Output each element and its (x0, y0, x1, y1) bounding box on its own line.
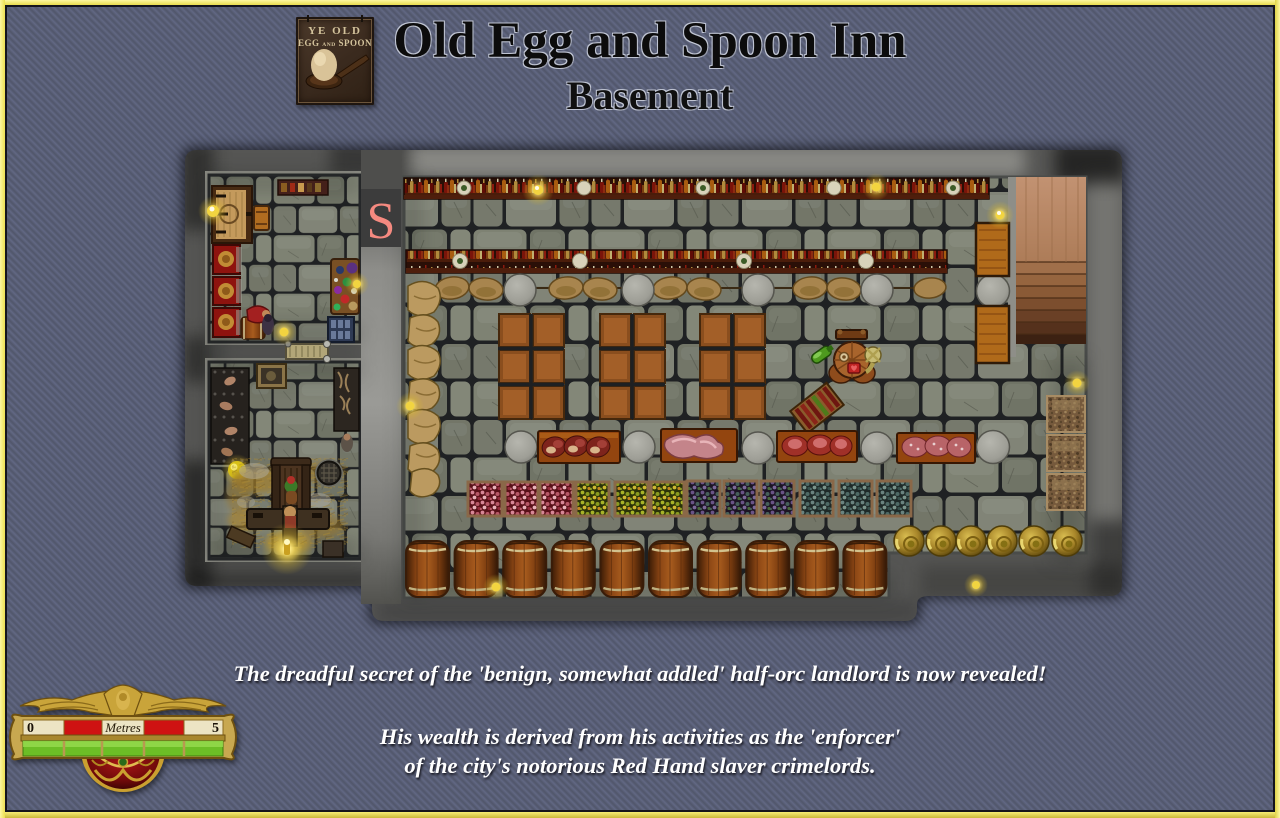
svg-text:S: S (367, 193, 396, 250)
svg-text:0: 0 (27, 721, 34, 736)
svg-text:Metres: Metres (104, 720, 141, 735)
svg-text:5: 5 (212, 721, 219, 736)
